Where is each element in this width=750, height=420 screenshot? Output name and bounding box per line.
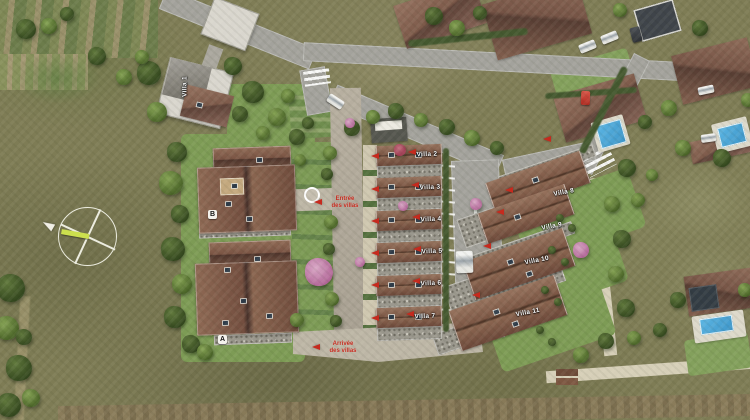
villa-label: Villa 7: [405, 312, 445, 322]
plan-annotations-layer: Villa 1Villa 2Villa 3Villa 4Villa 5Villa…: [0, 0, 750, 420]
villa-entrance-arrow-icon: [483, 243, 491, 249]
building-marker: A: [218, 335, 227, 344]
villa-label: Villa 4: [411, 215, 451, 225]
villa-entrance-arrow-icon: [505, 187, 513, 193]
villa-label: Villa 9: [532, 219, 573, 235]
villa-entrance-arrow-icon: [472, 292, 480, 298]
annotation-line: des villas: [322, 203, 368, 210]
aerial-site-plan: Villa 1Villa 2Villa 3Villa 4Villa 5Villa…: [0, 0, 750, 420]
villa-label: Villa 6: [411, 279, 451, 289]
villa-entrance-arrow-icon: [543, 136, 551, 142]
building-marker: B: [208, 210, 217, 219]
villa-label: Villa 2: [407, 150, 447, 160]
villa-entrance-arrow-icon: [371, 186, 379, 192]
entrance-annotation: Arrivéedes villas: [316, 341, 366, 355]
villa-entrance-arrow-icon: [371, 153, 379, 159]
entrance-arrow-icon: [312, 344, 320, 350]
annotation-line: des villas: [320, 348, 366, 355]
villa-label: Villa 5: [412, 247, 452, 257]
entrance-arrow-icon: [314, 199, 322, 205]
villa-label: Villa 3: [410, 183, 450, 193]
entrance-annotation: Entréedes villas: [318, 196, 368, 210]
compass: [58, 207, 118, 267]
villa-entrance-arrow-icon: [496, 209, 504, 215]
north-arrow-icon: [41, 219, 55, 232]
villa-label: Villa 10: [517, 253, 558, 269]
villa-label: Villa 8: [544, 185, 585, 201]
villa-entrance-arrow-icon: [371, 250, 379, 256]
villa-entrance-arrow-icon: [371, 282, 379, 288]
villa-entrance-arrow-icon: [371, 315, 379, 321]
villa-label: Villa 11: [508, 305, 549, 321]
villa-label: Villa 1: [182, 67, 191, 107]
villa-entrance-arrow-icon: [371, 218, 379, 224]
